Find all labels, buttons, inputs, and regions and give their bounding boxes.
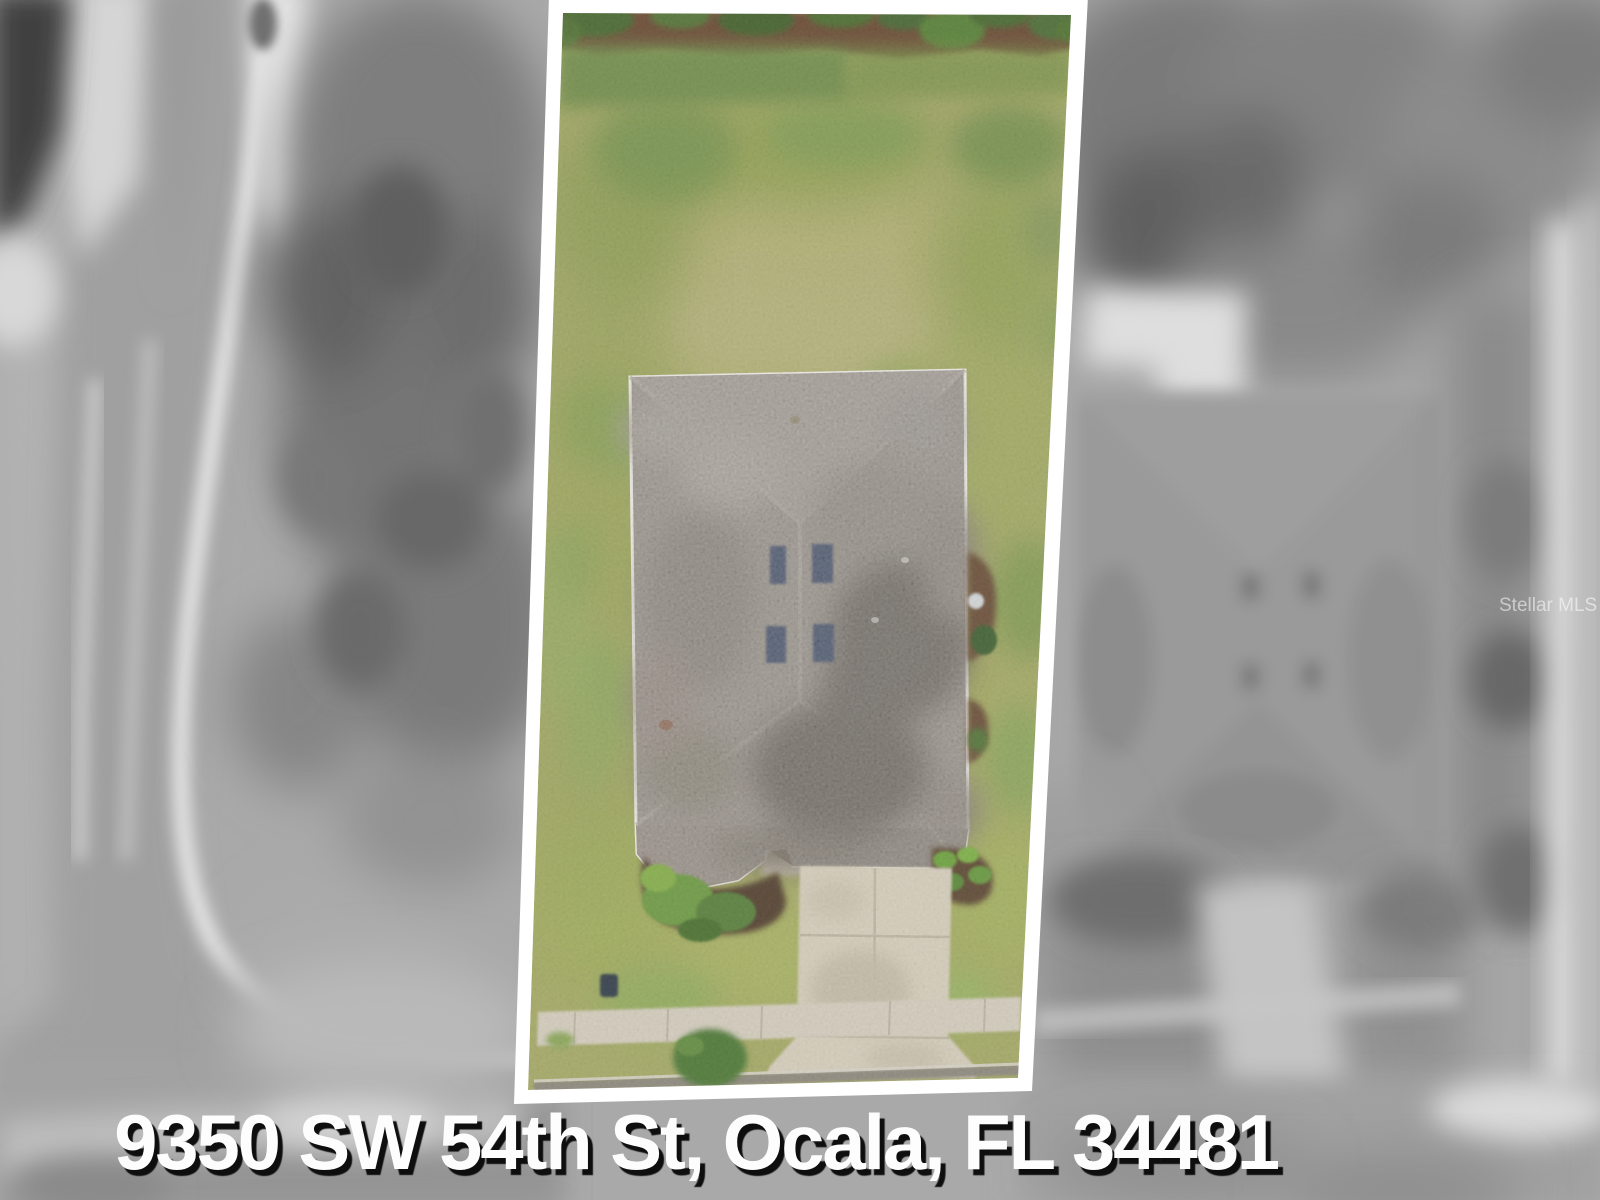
svg-text:Stellar MLS: Stellar MLS <box>1499 595 1597 616</box>
